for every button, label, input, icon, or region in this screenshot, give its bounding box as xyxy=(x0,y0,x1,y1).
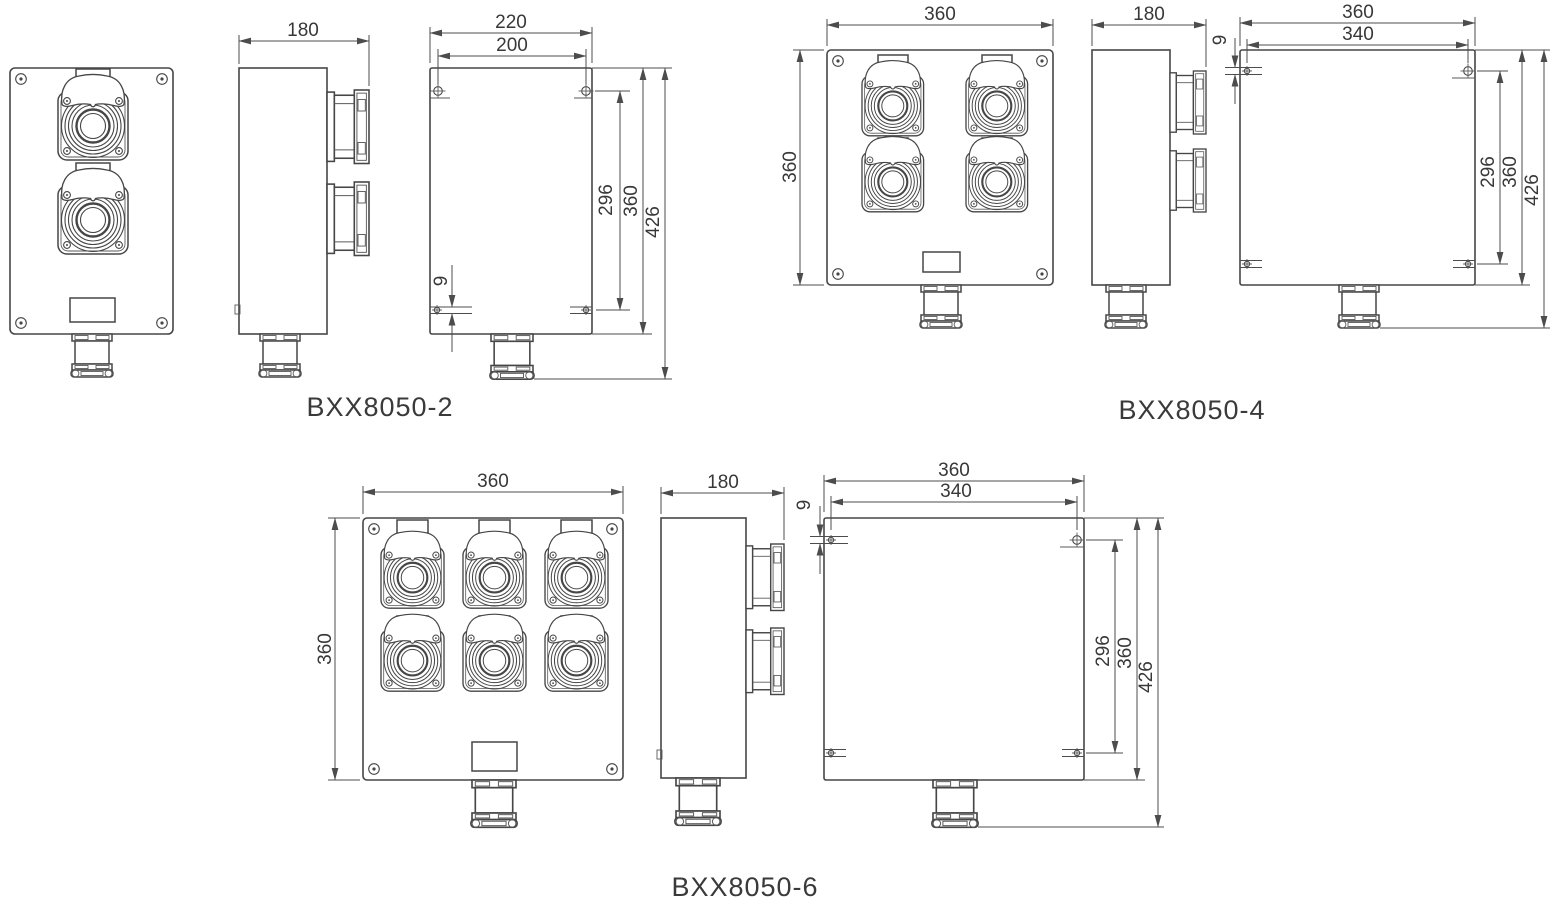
socket-outlet xyxy=(545,614,608,691)
enclosure-side xyxy=(661,518,746,778)
dim-overall-height: 426 xyxy=(643,206,664,238)
socket-outlet xyxy=(545,531,608,608)
socket-outlet xyxy=(463,531,526,608)
socket-side-profile xyxy=(327,182,369,256)
caption-bxx8050-6: BXX8050-6 xyxy=(671,872,818,902)
dim-body-height: 360 xyxy=(1115,637,1136,669)
socket-side-profile xyxy=(746,544,784,611)
socket-side-profile xyxy=(746,628,784,695)
cable-gland xyxy=(1105,285,1147,328)
socket-outlet xyxy=(463,614,526,691)
caption-bxx8050-4: BXX8050-4 xyxy=(1118,395,1265,425)
dim-hole-spacing-v: 296 xyxy=(1093,635,1114,667)
dim-side-width: 180 xyxy=(287,20,319,41)
socket-outlet xyxy=(862,137,924,212)
dim-back-width: 360 xyxy=(1342,2,1374,23)
dim-body-height: 360 xyxy=(621,185,642,217)
side-view-bxx8050-6: 180 xyxy=(657,472,784,825)
cable-gland xyxy=(71,334,113,377)
dim-side-width: 180 xyxy=(707,472,739,493)
nameplate xyxy=(70,298,115,322)
back-view-bxx8050-6: 360 340 9 296 360 426 xyxy=(794,460,1164,827)
front-view-bxx8050-6: 360 360 xyxy=(315,471,623,827)
dim-body-height: 360 xyxy=(1500,156,1521,188)
enclosure-side xyxy=(239,68,327,334)
socket-outlet xyxy=(58,75,128,161)
socket-side-profile xyxy=(327,90,369,164)
back-view-bxx8050-4: 360 340 9 296 360 426 xyxy=(1210,2,1550,328)
dim-hole-spacing-h: 200 xyxy=(496,35,528,56)
enclosure-back xyxy=(1240,50,1475,285)
socket-outlet xyxy=(381,531,444,608)
cable-gland xyxy=(259,334,301,377)
dim-front-width: 360 xyxy=(477,471,509,492)
caption-bxx8050-2: BXX8050-2 xyxy=(306,392,453,422)
dim-back-width: 360 xyxy=(938,460,970,481)
cable-gland xyxy=(675,778,721,825)
product-bxx8050-4: 360 360 180 xyxy=(780,2,1550,425)
enclosure-side xyxy=(1092,50,1170,285)
dim-overall-height: 426 xyxy=(1136,661,1157,693)
dim-front-width: 360 xyxy=(924,4,956,25)
dim-hole-spacing-h: 340 xyxy=(940,481,972,502)
dim-front-height: 360 xyxy=(315,633,336,665)
nameplate xyxy=(923,252,960,272)
enclosure-back xyxy=(430,68,592,334)
cable-gland xyxy=(920,285,962,328)
cable-gland xyxy=(471,780,517,827)
nameplate xyxy=(472,742,517,771)
product-bxx8050-2: 180 220 xyxy=(10,12,672,422)
back-view-bxx8050-2: 220 200 296 360 426 9 xyxy=(430,12,672,379)
dim-hole-spacing-v: 296 xyxy=(596,184,617,216)
socket-side-profile xyxy=(1170,149,1206,212)
cable-gland xyxy=(490,334,534,379)
side-view-bxx8050-2: 180 xyxy=(235,20,369,377)
front-view-bxx8050-4: 360 360 xyxy=(780,4,1053,328)
dim-front-height: 360 xyxy=(780,151,801,183)
dim-slot-offset: 9 xyxy=(431,276,452,287)
socket-outlet xyxy=(862,61,924,136)
socket-outlet xyxy=(966,137,1028,212)
socket-side-profile xyxy=(1170,71,1206,134)
dim-slot-offset: 9 xyxy=(1210,35,1231,46)
socket-outlet xyxy=(58,169,128,255)
dimension-drawing: 180 220 xyxy=(0,0,1550,911)
product-bxx8050-6: 360 360 xyxy=(315,460,1164,902)
dim-side-width: 180 xyxy=(1133,4,1165,25)
dim-hole-spacing-h: 340 xyxy=(1342,24,1374,45)
socket-outlet xyxy=(381,614,444,691)
dim-hole-spacing-v: 296 xyxy=(1478,156,1499,188)
cable-gland xyxy=(932,780,978,827)
drawing-canvas: 180 220 xyxy=(0,0,1550,911)
cable-gland xyxy=(1338,285,1380,328)
dim-overall-height: 426 xyxy=(1522,174,1543,206)
enclosure-back xyxy=(824,518,1084,780)
front-view-bxx8050-2 xyxy=(10,68,173,377)
socket-outlet xyxy=(966,61,1028,136)
side-view-bxx8050-4: 180 xyxy=(1092,4,1206,328)
dim-back-width: 220 xyxy=(495,12,527,33)
dim-slot-offset: 9 xyxy=(794,500,815,511)
